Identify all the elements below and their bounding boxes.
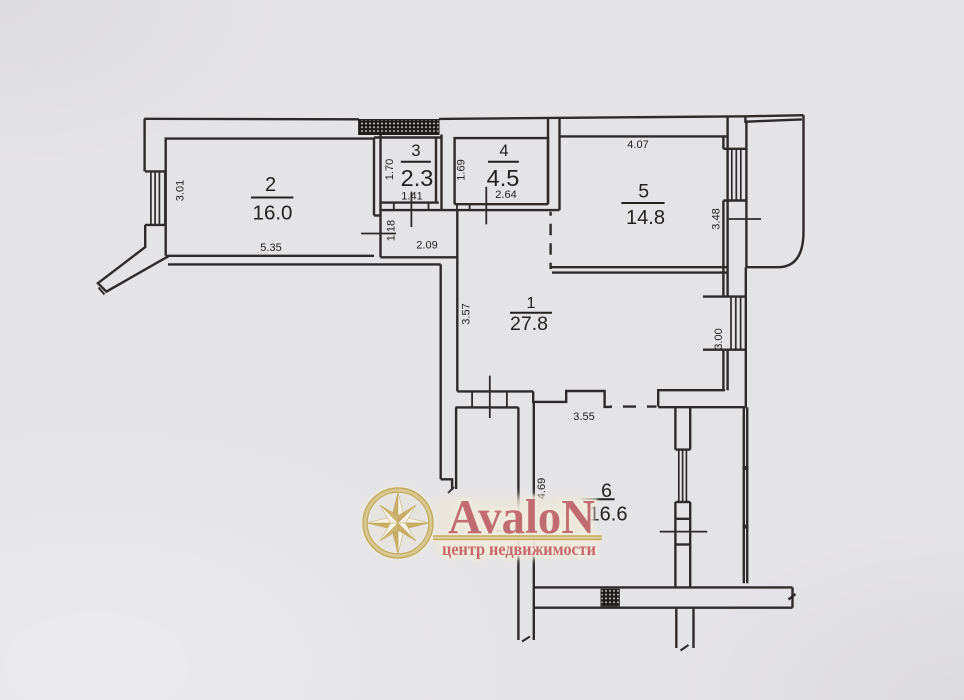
- svg-text:AvaloN: AvaloN: [448, 489, 595, 544]
- svg-text:2.64: 2.64: [495, 189, 516, 201]
- svg-text:2.09: 2.09: [416, 240, 437, 252]
- svg-text:1.41: 1.41: [401, 190, 422, 202]
- svg-text:3.00: 3.00: [713, 328, 725, 349]
- svg-text:1.18: 1.18: [386, 220, 398, 241]
- svg-text:3.01: 3.01: [175, 180, 187, 201]
- svg-text:1.69: 1.69: [456, 159, 468, 180]
- svg-text:4.5: 4.5: [487, 165, 520, 191]
- svg-text:16.0: 16.0: [253, 202, 293, 225]
- svg-text:3.55: 3.55: [573, 411, 594, 423]
- svg-text:1.70: 1.70: [384, 159, 396, 180]
- svg-text:2: 2: [265, 174, 276, 196]
- svg-text:4.07: 4.07: [627, 139, 648, 151]
- svg-text:1: 1: [527, 295, 536, 312]
- svg-text:4: 4: [499, 142, 508, 160]
- svg-text:3: 3: [411, 142, 420, 160]
- svg-text:3.48: 3.48: [711, 208, 723, 229]
- svg-text:27.8: 27.8: [510, 313, 548, 335]
- svg-text:14.8: 14.8: [626, 207, 665, 229]
- svg-text:2.3: 2.3: [401, 165, 434, 191]
- svg-text:3.57: 3.57: [461, 303, 473, 324]
- svg-text:5: 5: [638, 181, 649, 203]
- svg-text:5.35: 5.35: [260, 242, 281, 254]
- svg-text:центр недвижимости: центр недвижимости: [442, 539, 596, 559]
